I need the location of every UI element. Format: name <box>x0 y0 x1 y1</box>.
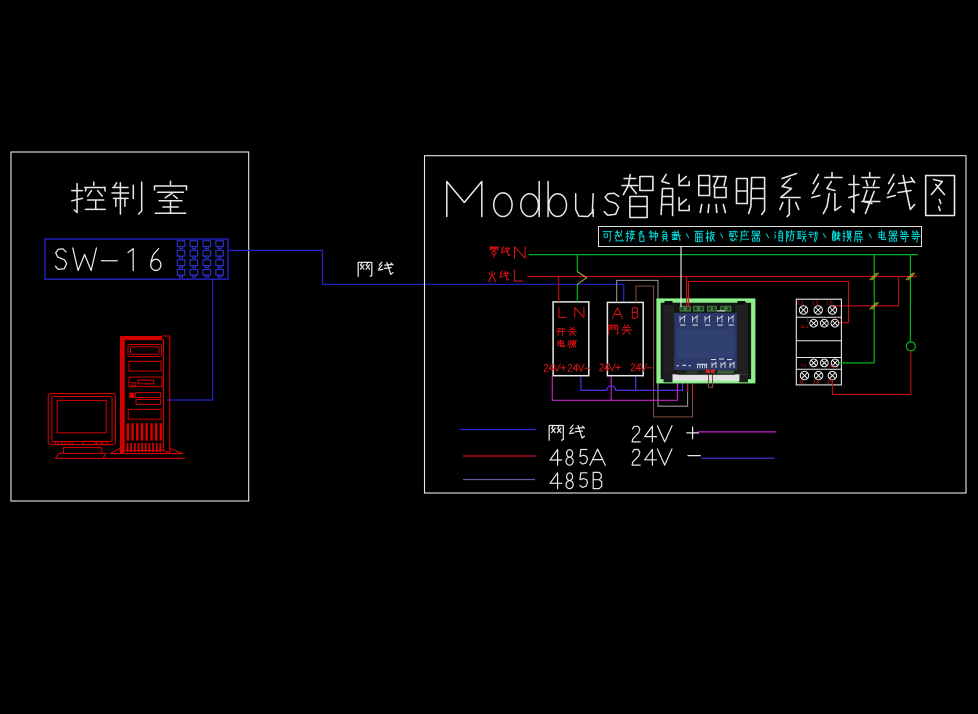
svg-text:3: 3 <box>806 318 809 323</box>
svg-text:11: 11 <box>799 379 805 385</box>
svg-text:1L1: 1L1 <box>801 324 809 330</box>
svg-text:2: 2 <box>836 317 839 323</box>
svg-text:L3: L3 <box>812 300 818 306</box>
svg-text:A1: A1 <box>801 363 807 369</box>
svg-text:L5: L5 <box>827 300 833 306</box>
svg-text:A2: A2 <box>829 364 835 370</box>
svg-text:13: 13 <box>813 379 819 385</box>
svg-text:L1: L1 <box>798 300 804 306</box>
